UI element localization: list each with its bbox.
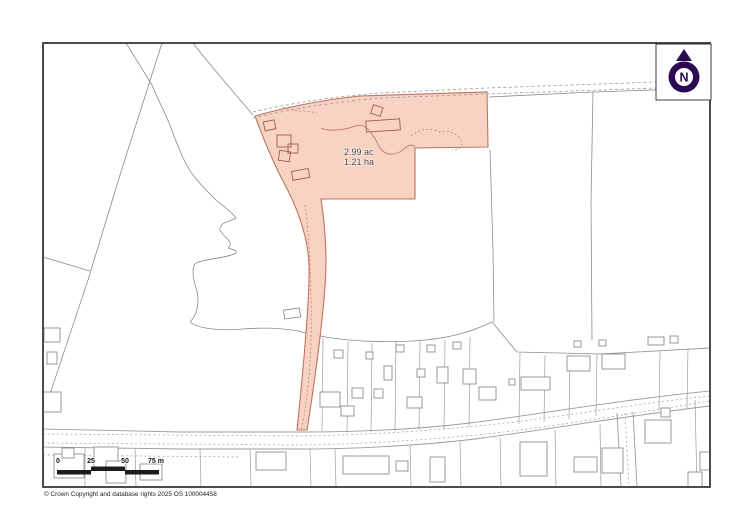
copyright-notice: © Crown Copyright and database rights 20… bbox=[44, 490, 217, 498]
north-label: N bbox=[679, 71, 688, 85]
scale-tick-25: 25 bbox=[87, 458, 95, 465]
site-plan-map: 2.99 ac 1.21 ha 0 25 50 75 m N © Crown C… bbox=[0, 0, 753, 520]
scale-tick-0: 0 bbox=[56, 458, 60, 465]
scale-segment-2 bbox=[91, 467, 125, 472]
area-acres-label: 2.99 ac bbox=[344, 147, 374, 157]
scale-tick-50: 50 bbox=[121, 458, 129, 465]
north-indicator: N bbox=[656, 44, 711, 100]
area-hectares-label: 1.21 ha bbox=[344, 157, 374, 167]
scale-segment-3 bbox=[125, 470, 159, 475]
area-label: 2.99 ac 1.21 ha bbox=[344, 147, 374, 167]
scale-segment-1 bbox=[57, 470, 91, 475]
scale-tick-75: 75 m bbox=[148, 458, 164, 465]
